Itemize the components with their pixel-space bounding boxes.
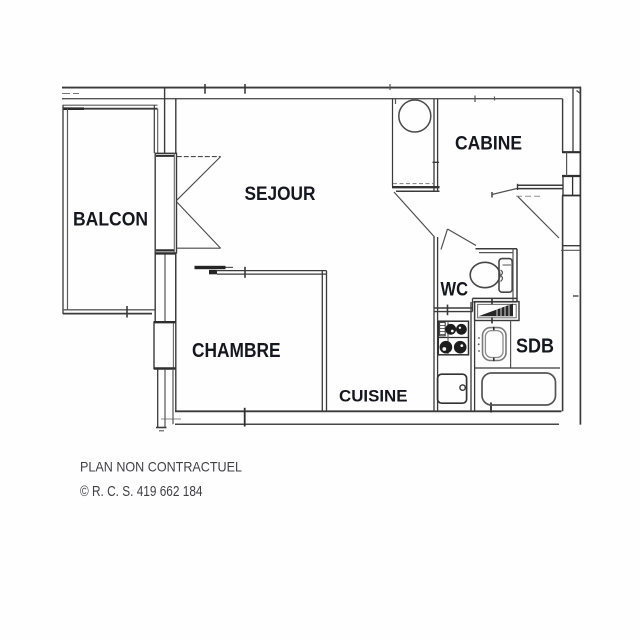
svg-text:WC: WC [441, 278, 469, 300]
svg-text:CUISINE: CUISINE [339, 386, 408, 405]
svg-text:PLAN NON CONTRACTUEL: PLAN NON CONTRACTUEL [80, 458, 242, 474]
svg-text:BALCON: BALCON [73, 208, 148, 230]
svg-text:CHAMBRE: CHAMBRE [192, 340, 281, 362]
svg-text:CABINE: CABINE [455, 133, 522, 155]
svg-text:© R. C. S. 419 662 184: © R. C. S. 419 662 184 [80, 483, 203, 500]
svg-text:SDB: SDB [516, 335, 554, 358]
svg-text:SEJOUR: SEJOUR [245, 184, 316, 205]
